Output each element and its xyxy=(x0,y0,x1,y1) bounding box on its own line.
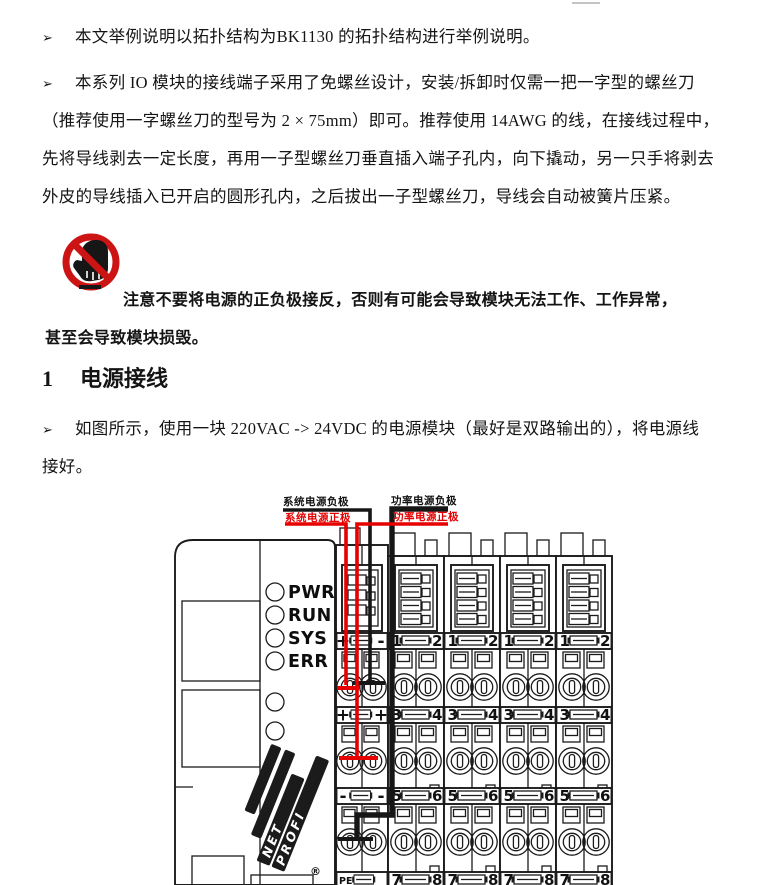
led-pwr xyxy=(266,583,284,601)
power-row1-left: + xyxy=(336,632,350,652)
label-system-negative: 系统电源负极 xyxy=(283,495,349,508)
text-line: 先将导线剥去一定长度，再用一子型螺丝刀垂直插入端子孔内，向下撬动，另一只手将剥去 xyxy=(42,140,742,178)
paragraph-power-module: ➢如图所示，使用一块 220VAC -> 24VDC 的电源模块（最好是双路输出… xyxy=(42,410,742,486)
registered-mark: ® xyxy=(310,865,321,878)
text-line: 甚至会导致模块损毁。 xyxy=(45,320,745,358)
power-row2-right: + xyxy=(374,706,388,726)
text-line: 本系列 IO 模块的接线端子采用了免螺丝设计，安装/拆卸时仅需一把一字型的螺丝刀 xyxy=(75,73,695,92)
text-line: 接好。 xyxy=(42,448,742,486)
io-module-3 xyxy=(500,533,556,885)
power-row3-right: - xyxy=(377,787,384,807)
led-run xyxy=(266,606,284,624)
power-row3-left: - xyxy=(339,787,346,807)
wiring-diagram: 1 2 3 4 5 6 7 xyxy=(163,487,623,885)
profinet-logo: NET PROFI xyxy=(229,738,330,872)
document-page: ➢本文举例说明以拓扑结构为BK1130 的拓扑结构进行举例说明。 ➢本系列 IO… xyxy=(0,0,776,885)
led-sys xyxy=(266,629,284,647)
bus-coupler: PWR RUN SYS ERR NET PROFI ® xyxy=(175,540,335,885)
io-module-2 xyxy=(444,533,500,885)
paragraph-topology: ➢本文举例说明以拓扑结构为BK1130 的拓扑结构进行举例说明。 xyxy=(42,18,742,56)
heading-number: 1 xyxy=(42,360,80,398)
power-row1-right: - xyxy=(377,632,384,652)
io-module-1 xyxy=(388,533,444,885)
led-extra-2 xyxy=(266,722,284,740)
label-system-positive: 系统电源正极 xyxy=(285,511,351,524)
power-row4-pe: PE xyxy=(339,876,352,885)
led-extra-1 xyxy=(266,693,284,711)
led-label-err: ERR xyxy=(288,652,328,672)
text-line: 本文举例说明以拓扑结构为BK1130 的拓扑结构进行举例说明。 xyxy=(75,27,540,46)
warning-text: 注意不要将电源的正负极接反，否则有可能会导致模块无法工作、工作异常， 甚至会导致… xyxy=(45,282,745,358)
text-line: 外皮的导线插入已开启的圆形孔内，之后拔出一子型螺丝刀，导线会自动被簧片压紧。 xyxy=(42,178,742,216)
paragraph-terminal-design: ➢本系列 IO 模块的接线端子采用了免螺丝设计，安装/拆卸时仅需一把一字型的螺丝… xyxy=(42,64,742,216)
led-label-sys: SYS xyxy=(288,629,327,649)
label-power-positive: 功率电源正极 xyxy=(393,510,459,523)
label-power-negative: 功率电源负极 xyxy=(391,494,457,507)
heading-title: 电源接线 xyxy=(80,366,168,391)
coupler-port-lower xyxy=(182,690,260,767)
led-err xyxy=(266,652,284,670)
led-label-run: RUN xyxy=(288,606,332,626)
coupler-port-upper xyxy=(182,601,260,681)
bullet-marker: ➢ xyxy=(42,20,75,58)
text-line: 如图所示，使用一块 220VAC -> 24VDC 的电源模块（最好是双路输出的… xyxy=(75,419,699,438)
coupler-port-bottom xyxy=(192,856,244,885)
section-heading: 1电源接线 xyxy=(42,360,642,398)
bullet-marker: ➢ xyxy=(42,66,75,104)
io-module-4 xyxy=(556,533,612,885)
led-label-pwr: PWR xyxy=(288,583,335,603)
bullet-marker: ➢ xyxy=(42,412,75,450)
power-row2-left: + xyxy=(336,706,350,726)
text-line: （推荐使用一字螺丝刀的型号为 2 × 75mm）即可。推荐使用 14AWG 的线… xyxy=(42,102,742,140)
power-terminal-column: + - + + - - PE xyxy=(336,528,388,885)
text-line: 注意不要将电源的正负极接反，否则有可能会导致模块无法工作、工作异常， xyxy=(45,282,745,320)
scan-artifact xyxy=(572,2,600,4)
led-indicators: PWR RUN SYS ERR xyxy=(266,583,335,740)
